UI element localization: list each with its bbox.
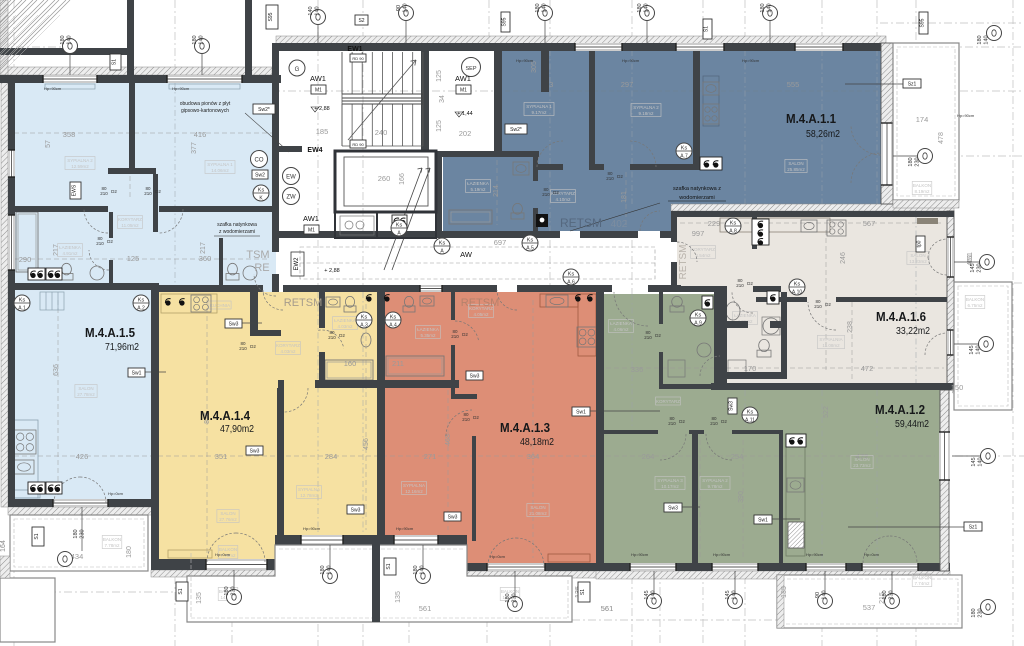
svg-text:125: 125 <box>127 254 140 263</box>
svg-text:SEP: SEP <box>465 66 476 72</box>
svg-text:210: 210 <box>100 191 108 196</box>
svg-text:Hp=0cm: Hp=0cm <box>864 552 880 557</box>
svg-text:RD 90: RD 90 <box>352 56 364 61</box>
svg-text:Ks: Ks <box>681 146 688 152</box>
svg-text:gipsowo-kartonowych: gipsowo-kartonowych <box>181 108 229 114</box>
svg-text:BALKON: BALKON <box>966 297 984 302</box>
svg-text:Hp=90cm: Hp=90cm <box>713 552 731 557</box>
svg-text:210: 210 <box>328 335 336 340</box>
svg-text:G: G <box>295 67 300 73</box>
svg-text:140: 140 <box>327 565 333 574</box>
svg-text:Sw3: Sw3 <box>729 401 735 411</box>
svg-text:4.54m2: 4.54m2 <box>695 253 711 258</box>
svg-text:174: 174 <box>916 115 929 124</box>
svg-text:Hp=90cm: Hp=90cm <box>957 113 975 118</box>
svg-text:Ks: Ks <box>19 298 26 304</box>
svg-text:Sw3: Sw3 <box>250 449 260 455</box>
svg-text:A.6: A.6 <box>567 280 575 286</box>
svg-text:125: 125 <box>436 70 443 82</box>
svg-text:Sw1: Sw1 <box>758 518 768 524</box>
svg-text:290: 290 <box>19 255 32 264</box>
svg-text:D2: D2 <box>155 189 161 194</box>
svg-text:Hp=90cm: Hp=90cm <box>303 526 321 531</box>
svg-text:ZW: ZW <box>286 195 296 201</box>
svg-text:145: 145 <box>644 590 650 599</box>
svg-text:ŁAZIENKA: ŁAZIENKA <box>610 321 632 326</box>
svg-text:S1: S1 <box>704 26 710 32</box>
svg-text:ŁAZIENKA: ŁAZIENKA <box>417 327 439 332</box>
svg-text:140: 140 <box>767 3 773 12</box>
svg-text:S95: S95 <box>920 18 926 27</box>
svg-text:135: 135 <box>781 586 788 598</box>
svg-text:Hp=90cm: Hp=90cm <box>44 86 62 91</box>
svg-text:140: 140 <box>651 590 657 599</box>
svg-text:27.78m2: 27.78m2 <box>77 392 95 397</box>
svg-text:SALON: SALON <box>78 386 93 391</box>
svg-text:150: 150 <box>951 383 964 392</box>
svg-text:210: 210 <box>814 304 822 309</box>
svg-text:180: 180 <box>224 586 230 595</box>
svg-text:tp0: tp0 <box>917 240 923 247</box>
svg-text:522: 522 <box>823 406 830 418</box>
svg-text:Sz1: Sz1 <box>908 82 917 88</box>
svg-text:Hp=90cm: Hp=90cm <box>172 86 190 91</box>
svg-text:D2: D2 <box>825 302 831 307</box>
svg-text:D2: D2 <box>721 419 727 424</box>
svg-text:+ 2,88: + 2,88 <box>324 268 339 274</box>
svg-text:A.3: A.3 <box>360 323 368 329</box>
svg-text:8.19m2: 8.19m2 <box>914 189 930 194</box>
svg-text:AW1: AW1 <box>310 74 326 83</box>
svg-text:obudowa pionów z płyt: obudowa pionów z płyt <box>180 101 231 107</box>
svg-text:377: 377 <box>191 142 198 154</box>
svg-text:M1: M1 <box>460 88 467 94</box>
svg-text:wodomierzami: wodomierzami <box>678 195 714 201</box>
svg-text:S1: S1 <box>112 59 118 65</box>
svg-text:SALON: SALON <box>530 505 545 510</box>
svg-text:A.10: A.10 <box>792 290 803 296</box>
svg-text:25.85m2: 25.85m2 <box>787 167 805 172</box>
svg-text:A.7: A.7 <box>680 154 688 160</box>
svg-text:Hp=90cm: Hp=90cm <box>806 552 824 557</box>
svg-text:13.23m2: 13.23m2 <box>909 259 927 264</box>
svg-text:229: 229 <box>708 219 721 228</box>
svg-text:185: 185 <box>316 127 329 136</box>
svg-text:180: 180 <box>908 157 914 166</box>
svg-text:KORYTARZ: KORYTARZ <box>118 217 142 222</box>
svg-text:BALKON: BALKON <box>103 537 121 542</box>
svg-text:561: 561 <box>419 604 432 613</box>
svg-text:240: 240 <box>375 128 388 137</box>
svg-text:180: 180 <box>60 35 66 44</box>
svg-text:Hp=0cm: Hp=0cm <box>108 491 124 496</box>
svg-text:164: 164 <box>0 540 7 552</box>
svg-text:210: 210 <box>144 191 152 196</box>
svg-text:A.11: A.11 <box>745 418 755 424</box>
svg-text:230: 230 <box>512 593 518 602</box>
svg-text:KORYTARZ: KORYTARZ <box>691 247 715 252</box>
svg-text:TSM: TSM <box>246 249 269 261</box>
svg-text:SALON: SALON <box>910 253 925 258</box>
svg-text:9.78m2: 9.78m2 <box>707 484 723 489</box>
svg-text:Ks: Ks <box>258 188 265 194</box>
svg-text:58,26m2: 58,26m2 <box>806 129 840 140</box>
svg-text:SALON: SALON <box>788 161 803 166</box>
svg-text:RETSM: RETSM <box>678 245 689 280</box>
svg-text:210: 210 <box>239 346 247 351</box>
svg-text:140: 140 <box>732 590 738 599</box>
svg-text:166: 166 <box>399 173 406 185</box>
svg-text:SYPIALNA: SYPIALNA <box>403 483 425 488</box>
svg-text:238: 238 <box>847 321 854 333</box>
svg-text:14.06m2: 14.06m2 <box>211 168 229 173</box>
svg-text:ŁAZIENKA: ŁAZIENKA <box>334 318 356 323</box>
svg-text:180: 180 <box>977 35 983 44</box>
svg-text:D2: D2 <box>655 333 661 338</box>
svg-text:M.4.A.1.3: M.4.A.1.3 <box>500 420 550 435</box>
svg-text:416: 416 <box>194 130 207 139</box>
svg-text:145: 145 <box>971 457 977 466</box>
svg-text:90: 90 <box>815 592 821 598</box>
svg-text:180: 180 <box>126 546 133 558</box>
svg-text:EW: EW <box>286 175 296 181</box>
svg-text:5.35m2: 5.35m2 <box>420 333 436 338</box>
svg-text:210: 210 <box>710 421 718 426</box>
svg-text:SYPIALNA 2: SYPIALNA 2 <box>633 105 659 110</box>
svg-text:S1: S1 <box>386 563 392 569</box>
svg-text:Ks: Ks <box>390 315 397 321</box>
svg-text:A.9: A.9 <box>694 321 702 327</box>
svg-text:S95: S95 <box>268 12 274 21</box>
svg-text:125: 125 <box>436 120 443 132</box>
svg-text:SYPIALNA 1: SYPIALNA 1 <box>207 162 233 167</box>
svg-text:11.08m2: 11.08m2 <box>822 343 840 348</box>
svg-text:EWS: EWS <box>72 184 78 196</box>
svg-text:S2: S2 <box>358 18 364 24</box>
svg-text:ŁAZIENKA: ŁAZIENKA <box>59 245 81 250</box>
svg-text:145: 145 <box>725 590 731 599</box>
svg-text:M1: M1 <box>315 88 322 94</box>
svg-text:ŁAZIENKA: ŁAZIENKA <box>734 313 756 318</box>
svg-text:4.91m2: 4.91m2 <box>62 251 78 256</box>
svg-text:360: 360 <box>199 254 212 263</box>
svg-text:Ks: Ks <box>794 282 801 288</box>
svg-text:336: 336 <box>631 365 644 374</box>
svg-text:Sw1: Sw1 <box>576 410 586 416</box>
svg-text:636: 636 <box>53 364 60 376</box>
svg-text:KORYTARZ: KORYTARZ <box>656 399 680 404</box>
svg-text:145: 145 <box>969 345 975 354</box>
svg-text:D2: D2 <box>250 344 256 349</box>
svg-text:Ks: Ks <box>361 315 368 321</box>
svg-text:Ks: Ks <box>439 241 446 247</box>
svg-text:202: 202 <box>459 129 472 138</box>
svg-text:561: 561 <box>601 604 614 613</box>
svg-text:A.2: A.2 <box>137 306 145 312</box>
svg-text:34: 34 <box>439 95 446 103</box>
svg-text:A.1: A.1 <box>18 306 26 312</box>
svg-text:D2: D2 <box>679 419 685 424</box>
svg-text:47,90m2: 47,90m2 <box>220 424 254 435</box>
svg-text:230: 230 <box>889 590 895 599</box>
svg-text:SYPIALNA: SYPIALNA <box>298 487 320 492</box>
svg-text:4.10m2: 4.10m2 <box>555 197 571 202</box>
svg-text:RETSM: RETSM <box>461 297 500 309</box>
svg-text:Ks: Ks <box>730 221 737 227</box>
svg-text:KORYTARZ: KORYTARZ <box>276 343 300 348</box>
svg-text:D2: D2 <box>553 190 559 195</box>
svg-text:59,44m2: 59,44m2 <box>895 419 929 430</box>
svg-text:AW1: AW1 <box>303 214 319 223</box>
svg-text:390: 390 <box>738 491 745 503</box>
svg-text:EW1: EW1 <box>347 46 362 53</box>
svg-text:210: 210 <box>644 335 652 340</box>
svg-text:211: 211 <box>392 359 404 368</box>
svg-text:Ks: Ks <box>527 238 534 244</box>
svg-text:180: 180 <box>971 608 977 617</box>
svg-text:254: 254 <box>731 452 744 461</box>
svg-text:997: 997 <box>692 229 705 238</box>
svg-text:KUCHNIA: KUCHNIA <box>210 303 230 308</box>
svg-text:217: 217 <box>200 242 207 254</box>
svg-text:214: 214 <box>493 185 500 197</box>
svg-text:180: 180 <box>535 3 541 12</box>
svg-text:BALKON: BALKON <box>501 589 519 594</box>
svg-text:EW4: EW4 <box>307 147 322 154</box>
svg-text:D2: D2 <box>107 239 113 244</box>
svg-text:Sw3: Sw3 <box>668 506 678 512</box>
svg-text:4.03m2: 4.03m2 <box>337 324 353 329</box>
svg-text:23.73m2: 23.73m2 <box>853 463 871 468</box>
svg-text:48,18m2: 48,18m2 <box>520 437 554 448</box>
svg-text:145: 145 <box>970 263 976 272</box>
svg-text:M.4.A.1.6: M.4.A.1.6 <box>876 309 926 324</box>
svg-text:71,96m2: 71,96m2 <box>105 342 139 353</box>
svg-text:Sw2*: Sw2* <box>258 107 270 113</box>
svg-text:A.4: A.4 <box>389 323 397 329</box>
svg-text:Sw3: Sw3 <box>229 322 239 328</box>
svg-text:456: 456 <box>363 438 370 450</box>
svg-text:140: 140 <box>984 35 990 44</box>
svg-text:SALON: SALON <box>854 457 869 462</box>
svg-text:230: 230 <box>80 529 86 538</box>
svg-text:180: 180 <box>73 529 79 538</box>
svg-text:SYPIALNA 2: SYPIALNA 2 <box>67 158 93 163</box>
svg-text:7.78m2: 7.78m2 <box>104 543 120 548</box>
svg-text:27.76m2: 27.76m2 <box>219 517 237 522</box>
svg-text:SALON: SALON <box>220 511 235 516</box>
svg-text:Sw3: Sw3 <box>351 508 361 514</box>
svg-text:SYPIALNA 2: SYPIALNA 2 <box>702 478 728 483</box>
svg-text:M1: M1 <box>308 228 315 234</box>
svg-text:210: 210 <box>462 417 470 422</box>
svg-text:M.4.A.1.5: M.4.A.1.5 <box>85 325 135 340</box>
svg-text:21.08m2: 21.08m2 <box>529 511 547 516</box>
svg-text:9.17m2: 9.17m2 <box>531 110 547 115</box>
svg-text:Hp=0cm: Hp=0cm <box>490 554 506 559</box>
svg-text:180: 180 <box>637 3 643 12</box>
svg-text:181: 181 <box>621 191 628 203</box>
svg-text:140: 140 <box>644 3 650 12</box>
svg-text:230: 230 <box>977 263 983 272</box>
svg-text:szafka natynkowa z: szafka natynkowa z <box>673 186 721 192</box>
svg-text:z wodomierzami: z wodomierzami <box>219 229 255 235</box>
svg-text:Ks: Ks <box>396 223 403 229</box>
svg-text:Ks: Ks <box>568 272 575 278</box>
svg-text:358: 358 <box>63 130 76 139</box>
svg-text:4.06m2: 4.06m2 <box>613 327 629 332</box>
svg-text:EW2: EW2 <box>294 257 300 271</box>
svg-text:33,22m2: 33,22m2 <box>896 326 930 337</box>
svg-text:5.19m2: 5.19m2 <box>470 187 486 192</box>
svg-text:RD 90: RD 90 <box>352 142 364 147</box>
svg-text:180: 180 <box>413 565 419 574</box>
svg-text:230: 230 <box>915 157 921 166</box>
svg-text:Sw3: Sw3 <box>448 515 458 521</box>
svg-text:140: 140 <box>978 457 984 466</box>
svg-text:Sw3: Sw3 <box>470 374 480 380</box>
svg-text:RE: RE <box>254 262 269 274</box>
svg-text:697: 697 <box>494 238 507 247</box>
svg-text:M.4.A.1.1: M.4.A.1.1 <box>786 111 836 126</box>
svg-text:297: 297 <box>621 80 634 89</box>
svg-text:180: 180 <box>320 565 326 574</box>
svg-text:210: 210 <box>451 334 459 339</box>
svg-text:Hp=90cm: Hp=90cm <box>742 58 760 63</box>
svg-text:BALKON: BALKON <box>913 575 931 580</box>
svg-text:57: 57 <box>45 140 52 148</box>
svg-text:ŁAZIENKA: ŁAZIENKA <box>467 181 489 186</box>
svg-text:D2: D2 <box>617 174 623 179</box>
svg-text:A.8: A.8 <box>729 229 737 235</box>
svg-text:180: 180 <box>760 3 766 12</box>
svg-text:4.05m2: 4.05m2 <box>473 312 489 317</box>
svg-text:Hp=0cm: Hp=0cm <box>215 552 231 557</box>
svg-text:140: 140 <box>822 590 828 599</box>
svg-text:210: 210 <box>96 241 104 246</box>
svg-text:284: 284 <box>325 452 338 461</box>
svg-text:D2: D2 <box>747 281 753 286</box>
svg-text:140: 140 <box>403 3 409 12</box>
svg-text:12.59m2: 12.59m2 <box>71 164 89 169</box>
svg-text:210: 210 <box>542 192 550 197</box>
svg-text:Hp=90cm: Hp=90cm <box>622 58 640 63</box>
svg-text:AW1: AW1 <box>455 74 471 83</box>
svg-text:Ks: Ks <box>747 410 754 416</box>
svg-text:6.75m2: 6.75m2 <box>967 303 983 308</box>
svg-text:RETSM: RETSM <box>560 216 602 230</box>
svg-text:BALKON: BALKON <box>913 183 931 188</box>
svg-text:135: 135 <box>196 592 203 604</box>
svg-text:Hp=90cm: Hp=90cm <box>396 526 414 531</box>
svg-text:246: 246 <box>840 252 847 264</box>
svg-text:Sz1: Sz1 <box>969 525 978 531</box>
svg-text:Sw2*: Sw2* <box>510 127 522 133</box>
svg-text:SYPIALNA 3: SYPIALNA 3 <box>657 478 683 483</box>
svg-text:537: 537 <box>863 603 876 612</box>
svg-text:402: 402 <box>611 219 628 230</box>
svg-text:210: 210 <box>606 176 614 181</box>
svg-text:9.18m2: 9.18m2 <box>638 111 654 116</box>
svg-text:Hp=90cm: Hp=90cm <box>631 552 649 557</box>
svg-text:Sw1: Sw1 <box>132 371 142 377</box>
svg-text:426: 426 <box>76 452 89 461</box>
svg-text:SYPIALNA 1: SYPIALNA 1 <box>526 104 552 109</box>
svg-text:140: 140 <box>420 565 426 574</box>
svg-text:RETSM: RETSM <box>284 297 323 309</box>
svg-text:M.4.A.1.4: M.4.A.1.4 <box>200 408 251 423</box>
svg-text:S95: S95 <box>502 17 508 26</box>
svg-text:567: 567 <box>863 219 876 228</box>
svg-text:12.16m2: 12.16m2 <box>405 489 423 494</box>
svg-text:351: 351 <box>215 452 228 461</box>
svg-text:SYPIALNIA: SYPIALNIA <box>819 337 842 342</box>
svg-text:230: 230 <box>978 608 984 617</box>
svg-text:S1: S1 <box>178 588 184 594</box>
svg-text:D2: D2 <box>462 332 468 337</box>
svg-text:555: 555 <box>787 80 800 89</box>
svg-text:90: 90 <box>396 5 402 11</box>
svg-text:D2: D2 <box>473 415 479 420</box>
svg-text:180: 180 <box>192 35 198 44</box>
svg-text:Hp=90cm: Hp=90cm <box>516 58 534 63</box>
svg-text:364: 364 <box>527 452 540 461</box>
svg-text:A.5: A.5 <box>526 246 534 252</box>
svg-text:S1: S1 <box>34 533 40 539</box>
svg-text:271: 271 <box>424 452 437 461</box>
svg-text:Ks: Ks <box>138 298 145 304</box>
svg-text:260: 260 <box>378 174 391 183</box>
svg-text:D2: D2 <box>339 333 345 338</box>
svg-text:135: 135 <box>395 591 402 603</box>
svg-text:140: 140 <box>315 6 321 15</box>
svg-text:M.4.A.1.2: M.4.A.1.2 <box>875 402 925 417</box>
svg-text:Ks: Ks <box>695 313 702 319</box>
svg-text:472: 472 <box>861 364 874 373</box>
svg-text:140: 140 <box>976 345 982 354</box>
svg-text:210: 210 <box>668 421 676 426</box>
svg-text:szafka natynkowa: szafka natynkowa <box>217 222 257 228</box>
svg-text:210: 210 <box>736 283 744 288</box>
svg-text:478: 478 <box>938 132 945 144</box>
svg-text:140: 140 <box>67 35 73 44</box>
svg-text:180: 180 <box>505 593 511 602</box>
svg-text:D2: D2 <box>111 189 117 194</box>
svg-text:12.78m2: 12.78m2 <box>300 493 318 498</box>
svg-text:180: 180 <box>882 590 888 599</box>
svg-text:140: 140 <box>542 3 548 12</box>
svg-text:CO: CO <box>255 158 264 164</box>
svg-text:AW: AW <box>460 250 473 259</box>
svg-text:4.03m2: 4.03m2 <box>280 349 296 354</box>
svg-text:7.74m2: 7.74m2 <box>914 581 930 586</box>
svg-text:Sw2: Sw2 <box>255 173 265 179</box>
svg-text:10.17m2: 10.17m2 <box>661 484 679 489</box>
svg-text:170: 170 <box>744 364 757 373</box>
svg-text:230: 230 <box>231 586 237 595</box>
svg-text:S1: S1 <box>580 589 586 595</box>
svg-text:140: 140 <box>308 6 314 15</box>
svg-text:264: 264 <box>642 452 655 461</box>
svg-text:11.05m2: 11.05m2 <box>121 223 139 228</box>
svg-text:140: 140 <box>199 35 205 44</box>
